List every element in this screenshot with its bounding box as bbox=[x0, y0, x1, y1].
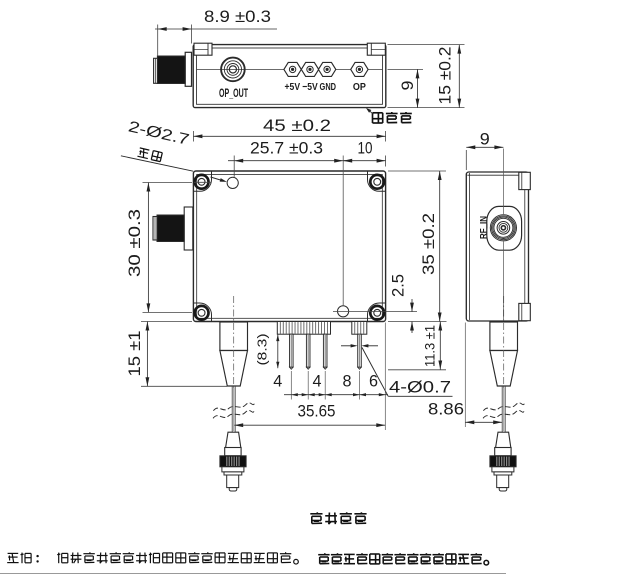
svg-text:8: 8 bbox=[342, 373, 351, 391]
svg-text:35.65: 35.65 bbox=[298, 403, 336, 421]
svg-text:OP_OUT: OP_OUT bbox=[219, 86, 248, 100]
svg-text:RF_IN: RF_IN bbox=[478, 216, 489, 239]
svg-text:15 ±1: 15 ±1 bbox=[126, 331, 144, 377]
svg-text:2.5: 2.5 bbox=[390, 274, 408, 297]
svg-text:(8.3): (8.3) bbox=[255, 334, 270, 366]
svg-text:10: 10 bbox=[358, 140, 373, 158]
svg-text:35 ±0.2: 35 ±0.2 bbox=[420, 213, 438, 275]
svg-text:4-Ø0.7: 4-Ø0.7 bbox=[389, 378, 451, 397]
svg-text:11.3 ±1: 11.3 ±1 bbox=[423, 325, 438, 367]
svg-text:+5V: +5V bbox=[285, 81, 301, 93]
svg-text:45 ±0.2: 45 ±0.2 bbox=[263, 117, 331, 135]
svg-text:9: 9 bbox=[399, 81, 417, 91]
svg-text:8.86: 8.86 bbox=[428, 401, 464, 419]
svg-text:30 ±0.3: 30 ±0.3 bbox=[126, 209, 144, 277]
svg-text:OP: OP bbox=[353, 81, 366, 93]
svg-text:GND: GND bbox=[320, 81, 337, 93]
svg-text:6: 6 bbox=[369, 373, 378, 391]
svg-text:25.7 ±0.3: 25.7 ±0.3 bbox=[250, 140, 323, 158]
svg-text:8.9 ±0.3: 8.9 ±0.3 bbox=[204, 8, 271, 26]
svg-text:4: 4 bbox=[273, 373, 282, 391]
svg-text:4: 4 bbox=[312, 373, 321, 391]
svg-text:−5V: −5V bbox=[302, 81, 318, 93]
svg-text:15 ±0.2: 15 ±0.2 bbox=[437, 47, 455, 105]
svg-text:9: 9 bbox=[480, 130, 490, 148]
